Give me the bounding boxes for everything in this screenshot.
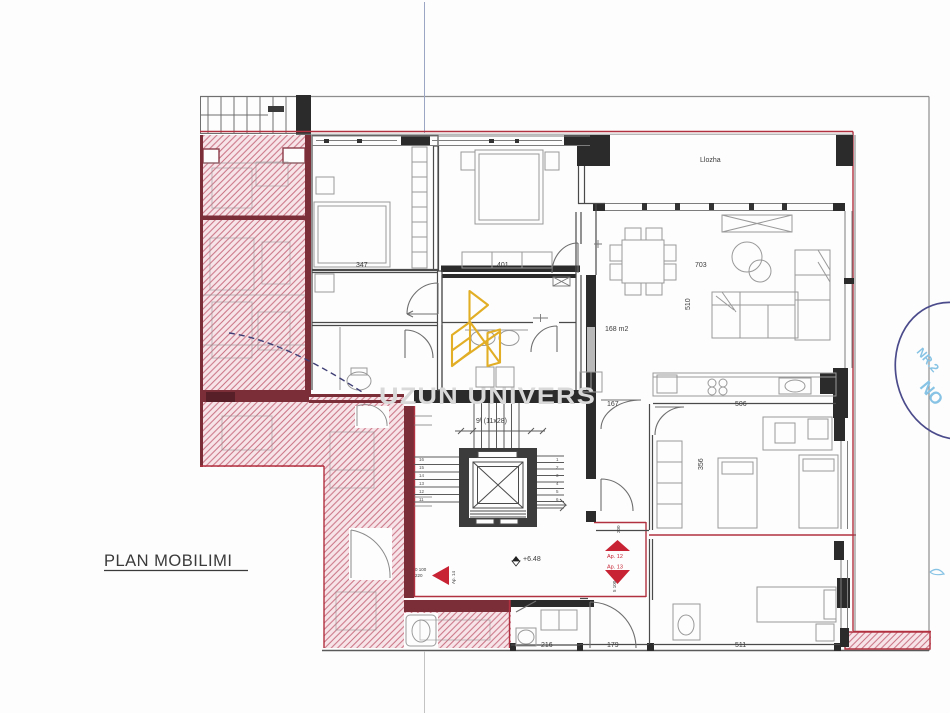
svg-text:11: 11 (419, 497, 424, 502)
svg-text:220: 220 (415, 573, 423, 578)
svg-text:401: 401 (497, 262, 509, 269)
svg-text:13: 13 (419, 481, 425, 486)
svg-text:16: 16 (419, 457, 425, 462)
svg-text:PLAN MOBILIMI: PLAN MOBILIMI (104, 552, 232, 570)
svg-text:9\ (11x28): 9\ (11x28) (476, 418, 507, 425)
svg-text:510: 510 (685, 298, 692, 310)
svg-text:167: 167 (607, 401, 619, 408)
svg-text:356: 356 (698, 458, 705, 470)
svg-text:703: 703 (695, 262, 707, 269)
svg-text:14: 14 (419, 473, 425, 478)
svg-text:Ap. 12: Ap. 12 (607, 554, 623, 560)
svg-text:15: 15 (419, 465, 425, 470)
svg-text:506: 506 (735, 401, 747, 408)
svg-text:5 100: 5 100 (612, 580, 617, 592)
svg-text:UZUN UNIVERS: UZUN UNIVERS (379, 383, 596, 410)
svg-text:216: 216 (541, 642, 553, 649)
svg-text:Llozha: Llozha (700, 157, 721, 164)
svg-text:347: 347 (356, 262, 368, 269)
svg-text:179: 179 (607, 642, 619, 649)
svg-text:12: 12 (419, 489, 425, 494)
svg-text:Ap. 14: Ap. 14 (451, 570, 456, 584)
svg-text:200: 200 (616, 525, 621, 533)
svg-text:0 100: 0 100 (415, 567, 427, 572)
svg-text:511: 511 (735, 642, 746, 649)
svg-text:168 m2: 168 m2 (605, 326, 628, 333)
svg-text:Ap. 13: Ap. 13 (607, 565, 623, 571)
svg-text:+6.48: +6.48 (523, 556, 541, 563)
